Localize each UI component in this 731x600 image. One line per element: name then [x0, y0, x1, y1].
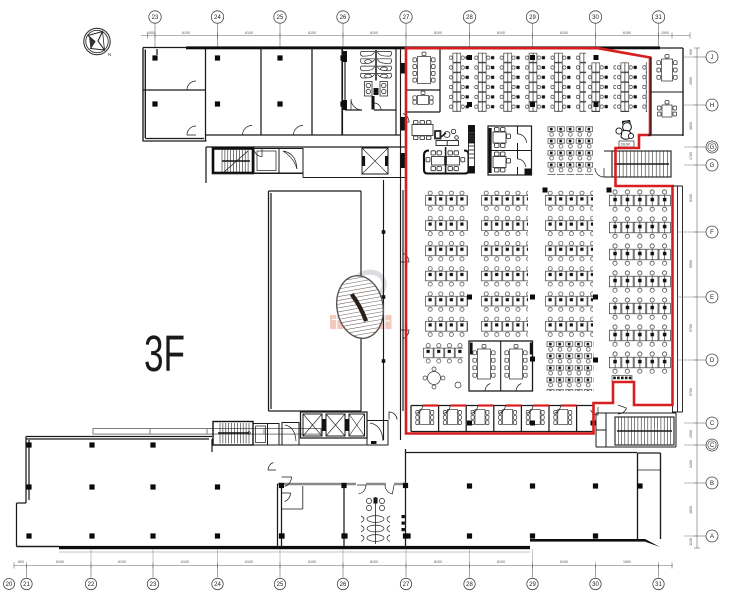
svg-text:23: 23 [152, 15, 159, 21]
svg-text:20: 20 [6, 582, 13, 588]
svg-text:8100: 8100 [497, 560, 505, 564]
svg-text:25: 25 [277, 582, 284, 588]
svg-text:27: 27 [403, 582, 410, 588]
svg-text:DESK: DESK [621, 143, 631, 147]
svg-text:4500: 4500 [689, 77, 693, 85]
svg-text:J: J [711, 55, 714, 61]
svg-text:6100: 6100 [245, 560, 253, 564]
svg-text:6100: 6100 [182, 31, 190, 35]
svg-text:28: 28 [466, 582, 473, 588]
svg-text:26: 26 [340, 15, 347, 21]
svg-text:6100: 6100 [689, 194, 693, 202]
svg-text:5750: 5750 [689, 388, 693, 396]
svg-text:H: H [710, 103, 714, 109]
svg-text:31: 31 [655, 582, 662, 588]
svg-text:G: G [710, 163, 715, 169]
svg-text:4800: 4800 [689, 506, 693, 514]
svg-text:1500: 1500 [147, 31, 155, 35]
svg-text:600: 600 [18, 560, 24, 564]
svg-text:N: N [108, 52, 111, 57]
svg-text:1500: 1500 [623, 560, 631, 564]
svg-text:C: C [710, 443, 715, 449]
svg-text:5900: 5900 [689, 260, 693, 268]
svg-text:3450: 3450 [689, 460, 693, 468]
svg-text:25: 25 [277, 15, 284, 21]
svg-text:8100: 8100 [370, 560, 378, 564]
svg-text:6100: 6100 [118, 560, 126, 564]
svg-text:3800: 3800 [689, 122, 693, 130]
svg-text:8100: 8100 [434, 31, 442, 35]
svg-text:C: C [710, 421, 715, 427]
svg-text:6100: 6100 [308, 31, 316, 35]
svg-text:1500: 1500 [661, 31, 669, 35]
svg-text:8100: 8100 [560, 31, 568, 35]
svg-text:1100: 1100 [689, 538, 693, 546]
svg-text:30: 30 [592, 15, 599, 21]
svg-text:28: 28 [466, 15, 473, 21]
svg-text:30: 30 [592, 582, 599, 588]
svg-text:29: 29 [529, 15, 536, 21]
svg-text:21: 21 [23, 582, 30, 588]
svg-text:23: 23 [150, 582, 157, 588]
svg-text:24: 24 [214, 15, 221, 21]
svg-text:6100: 6100 [245, 31, 253, 35]
svg-text:E: E [710, 295, 714, 301]
svg-text:6100: 6100 [370, 31, 378, 35]
svg-text:2000: 2000 [689, 430, 693, 438]
svg-text:6150: 6150 [560, 560, 568, 564]
svg-text:6100: 6100 [308, 560, 316, 564]
svg-text:24: 24 [214, 582, 221, 588]
svg-text:900: 900 [689, 49, 693, 55]
svg-text:6150: 6150 [623, 31, 631, 35]
svg-text:D: D [710, 358, 715, 364]
svg-text:1700: 1700 [689, 152, 693, 160]
svg-text:29: 29 [529, 582, 536, 588]
svg-text:22: 22 [88, 582, 95, 588]
svg-text:B: B [710, 481, 714, 487]
svg-text:A: A [710, 534, 714, 540]
svg-text:8100: 8100 [434, 560, 442, 564]
svg-text:6100: 6100 [56, 560, 64, 564]
svg-text:8100: 8100 [497, 31, 505, 35]
svg-text:31: 31 [655, 15, 662, 21]
svg-text:F: F [710, 230, 714, 236]
svg-text:3F: 3F [144, 325, 185, 382]
svg-text:6100: 6100 [181, 560, 189, 564]
svg-text:G: G [710, 145, 715, 151]
svg-text:5750: 5750 [689, 324, 693, 332]
svg-text:26: 26 [340, 582, 347, 588]
svg-text:27: 27 [403, 15, 410, 21]
